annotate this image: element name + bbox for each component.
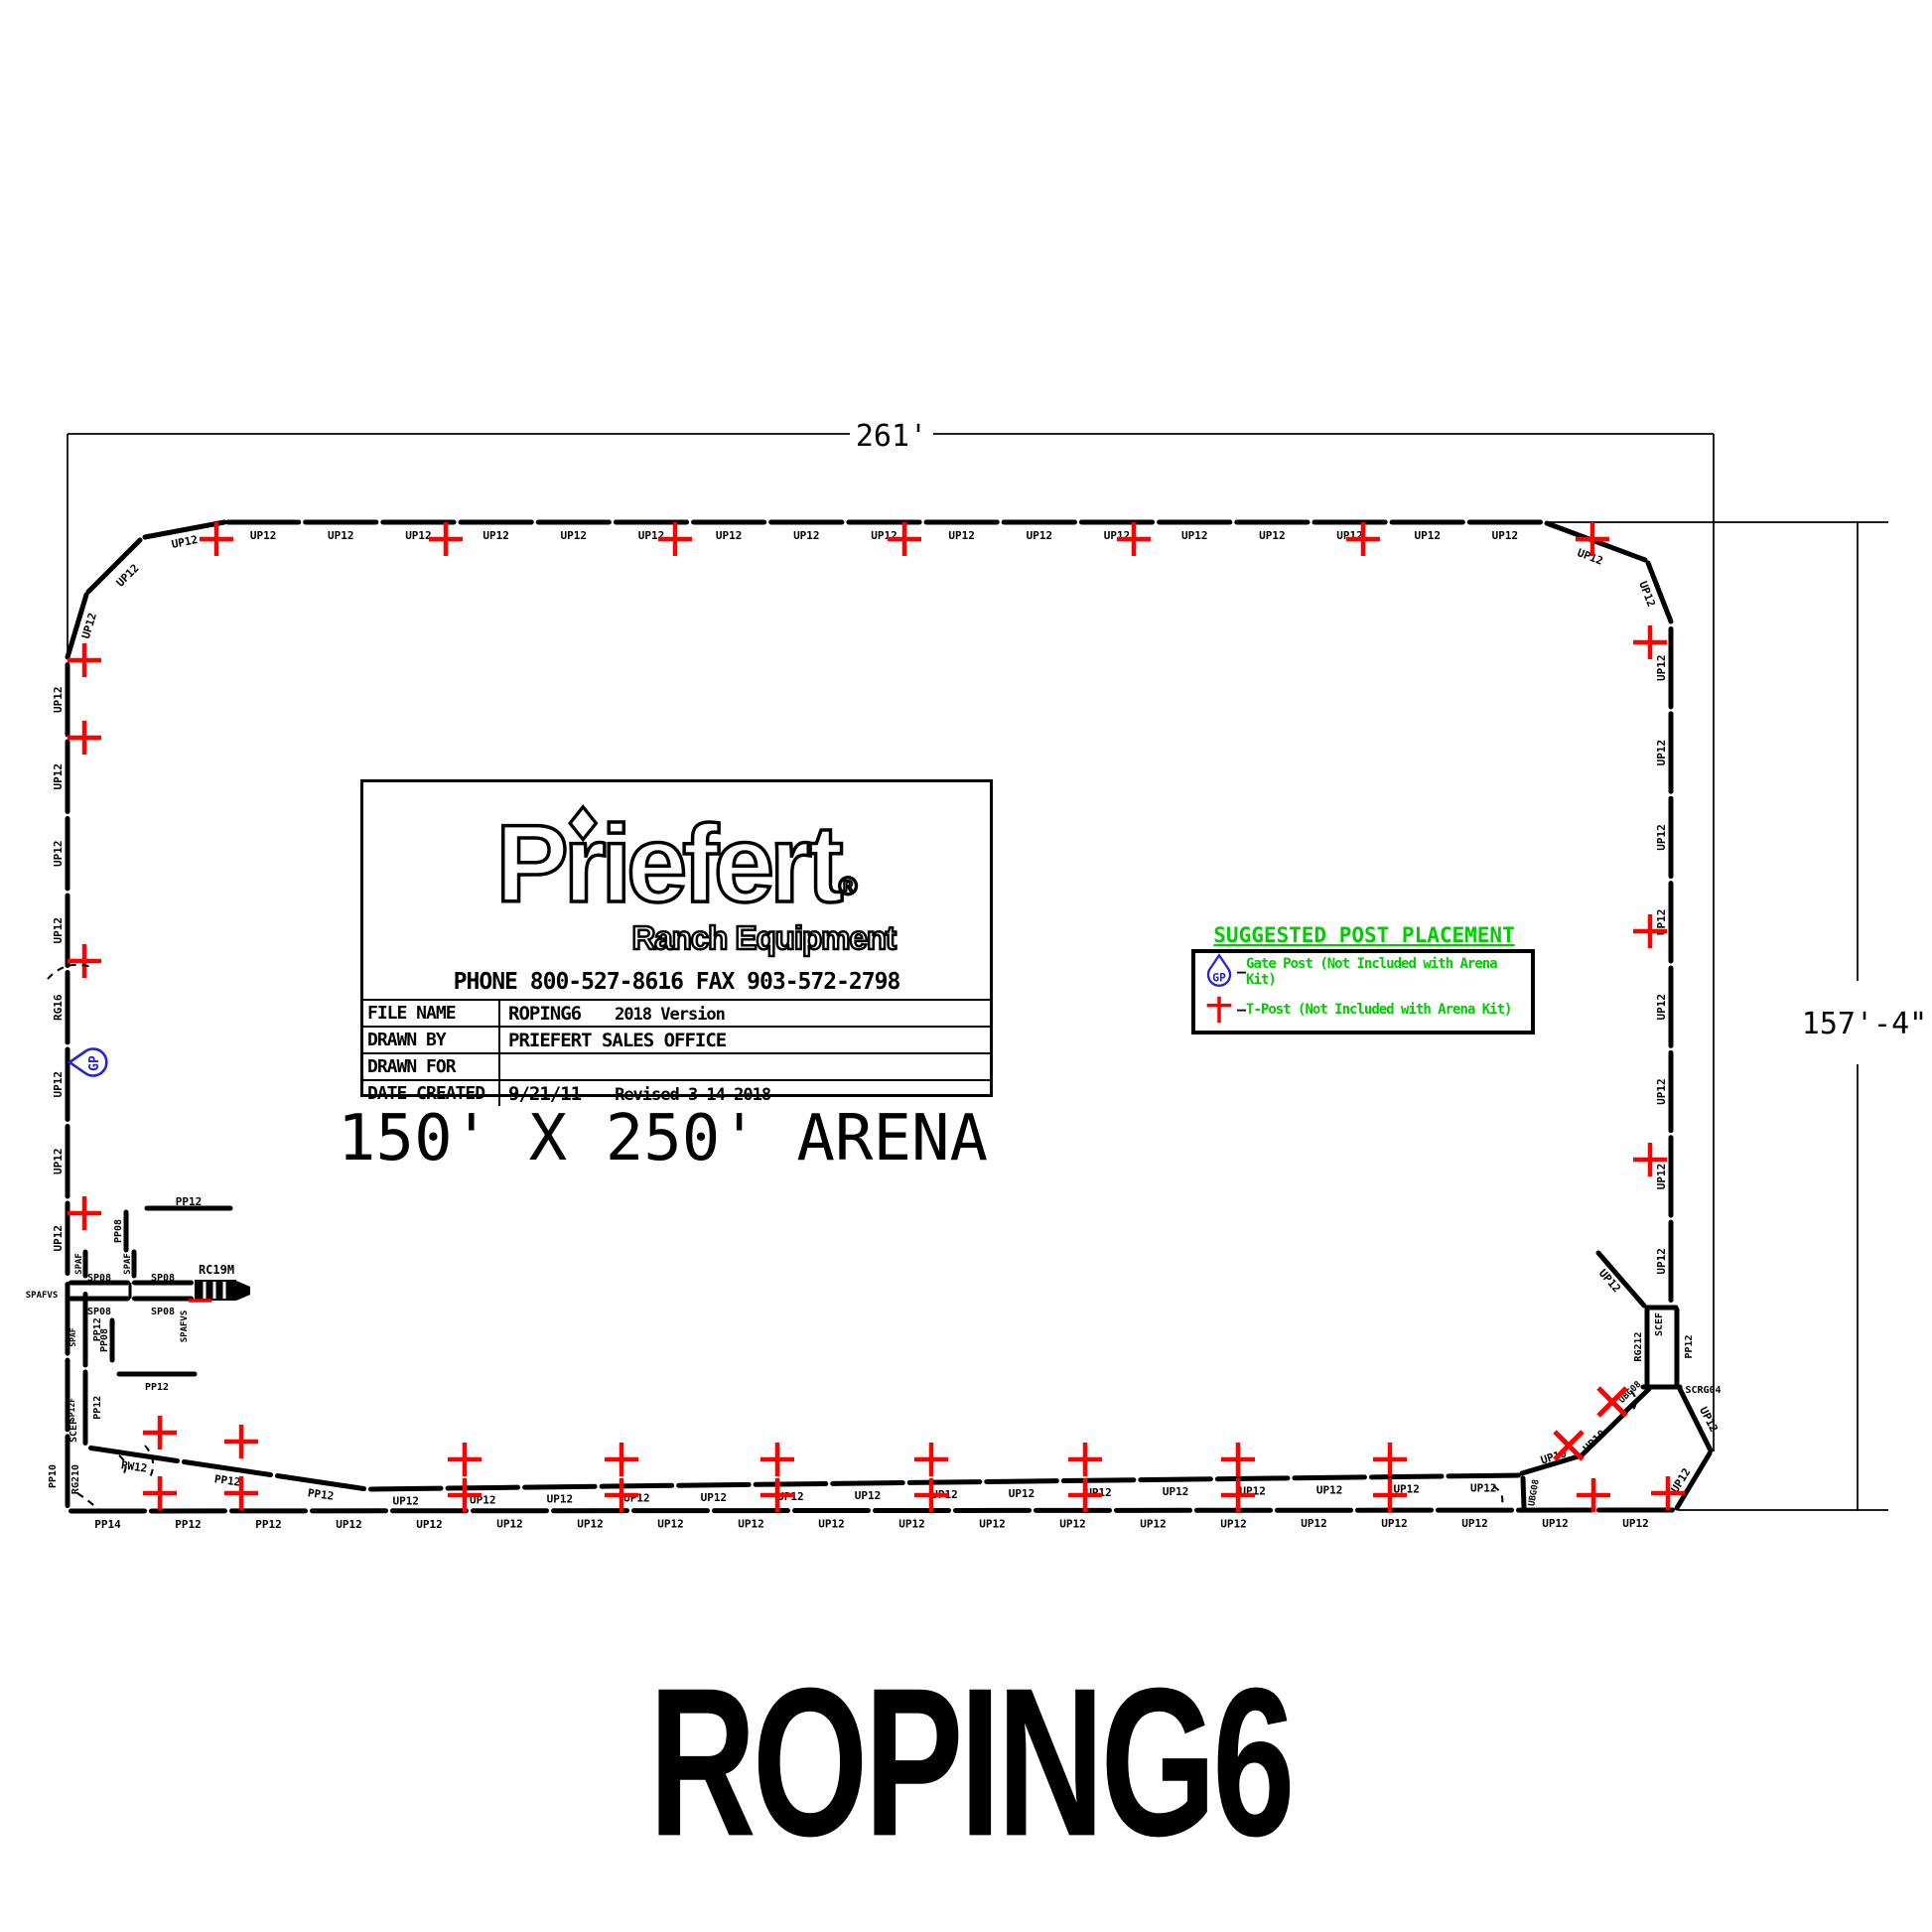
brand-subtitle: Ranch Equipment bbox=[631, 919, 896, 957]
panel-label-inner-left-fence: PP12 bbox=[92, 1396, 103, 1420]
panel-label-left-fence: UP12 bbox=[52, 1071, 65, 1098]
t-post-marker bbox=[1633, 625, 1667, 659]
panel-label-right-fence: UP12 bbox=[1655, 740, 1668, 766]
panel-label-chute-alley-top: SP08 bbox=[87, 1273, 111, 1284]
fence-panel-return-alley-diag bbox=[90, 1449, 177, 1461]
x-post-marker bbox=[1555, 1432, 1583, 1459]
panel-label-top-fence: UP12 bbox=[1414, 529, 1441, 542]
row-value: PRIEFERT SALES OFFICE bbox=[508, 1030, 726, 1051]
t-post-icon bbox=[1201, 993, 1237, 1027]
t-post-marker bbox=[760, 1443, 794, 1476]
panel-label-bottom-fence: UP12 bbox=[657, 1518, 684, 1531]
panel-label-top-fence: UP12 bbox=[1259, 529, 1286, 542]
dimension-right-label: 157'-4" bbox=[1802, 1007, 1927, 1041]
panel-label-return-alley: UP12 bbox=[1163, 1485, 1189, 1498]
equipment-label: SPAF bbox=[69, 1327, 77, 1346]
panel-label-right-fence: UP12 bbox=[1655, 824, 1668, 851]
equipment-label: SPAFVS bbox=[26, 1291, 59, 1301]
panel-label-top-fence: UP12 bbox=[793, 529, 820, 542]
panel-label-bottom-fence: UP12 bbox=[898, 1517, 925, 1530]
panel-label-right-fence: UP12 bbox=[1655, 1164, 1668, 1190]
row-value-2: 2018 Version bbox=[615, 1005, 725, 1025]
title-block: Priefert® ◆ Ranch Equipment PHONE 800-52… bbox=[360, 779, 993, 1097]
panel-label-strip-chute-gate: SCRG04 bbox=[1685, 1385, 1721, 1396]
fence-panel-return-alley bbox=[1063, 1480, 1134, 1481]
panel-label-bottom-fence: PP14 bbox=[94, 1518, 121, 1531]
panel-label-bottom-fence: UP12 bbox=[979, 1517, 1006, 1530]
panel-label-alley-end-gate: UBG08 bbox=[1527, 1478, 1542, 1506]
t-post-marker bbox=[448, 1478, 482, 1512]
panel-label-bottom-fence: UP12 bbox=[1542, 1517, 1569, 1530]
panel-label-bottom-fence: UP12 bbox=[1301, 1517, 1327, 1530]
fence-panel-return-alley bbox=[1295, 1477, 1365, 1478]
t-post-marker bbox=[1373, 1443, 1407, 1476]
panel-label-return-alley: UP12 bbox=[1009, 1487, 1035, 1500]
panel-label-top-fence: UP12 bbox=[716, 529, 743, 542]
panel-label-pen-top-rail: PP12 bbox=[176, 1195, 203, 1208]
panel-label-chute-alley-bottom: SP08 bbox=[87, 1307, 111, 1317]
arena-size-label: 150' X 250' ARENA bbox=[338, 1102, 1052, 1175]
phone-fax-line: PHONE 800-527-8616 FAX 903-572-2798 bbox=[363, 969, 990, 995]
t-post-marker bbox=[888, 522, 921, 556]
legend-dash: — bbox=[1237, 963, 1246, 981]
equipment-label: RC19M bbox=[199, 1263, 234, 1277]
row-label: DRAWN FOR bbox=[363, 1054, 500, 1079]
panel-label-return-alley-diag: PP12 bbox=[307, 1486, 335, 1503]
t-post-marker bbox=[1346, 522, 1380, 556]
t-post-marker bbox=[1221, 1443, 1255, 1476]
panel-label-tl-corner-1: UP12 bbox=[171, 533, 199, 551]
panel-label-top-fence: UP12 bbox=[561, 529, 588, 542]
t-post-marker bbox=[143, 1416, 177, 1449]
t-post-marker bbox=[68, 944, 101, 978]
panel-label-return-alley: UP12 bbox=[547, 1493, 574, 1506]
panel-label-bottom-fence: UP12 bbox=[336, 1518, 362, 1531]
gate-post-gp-label: GP bbox=[87, 1055, 102, 1071]
gate-swing-arc bbox=[77, 1493, 99, 1510]
panel-label-top-fence: UP12 bbox=[483, 529, 509, 542]
equipment-label: SPAFVS bbox=[180, 1311, 190, 1343]
fence-panel-return-alley-diag bbox=[184, 1462, 270, 1475]
t-post-marker bbox=[605, 1478, 638, 1512]
t-post-marker bbox=[1221, 1478, 1255, 1512]
panel-label-bottom-fence: PP12 bbox=[175, 1518, 202, 1531]
fence-panel-return-alley bbox=[756, 1483, 826, 1484]
panel-label-strip-chute-wing: UP12 bbox=[1596, 1267, 1623, 1296]
fence-panel-return-alley bbox=[1217, 1478, 1288, 1479]
panel-label-bottom-fence: UP12 bbox=[1220, 1517, 1247, 1530]
table-row: DRAWN FOR bbox=[363, 1052, 990, 1079]
panel-label-chute-frame-2: SPAF bbox=[123, 1253, 133, 1275]
panel-label-chute-alley-top: SP08 bbox=[151, 1273, 175, 1284]
legend-box: GP — Gate Post (Not Included with Arena … bbox=[1191, 949, 1535, 1035]
fence-panel-return-alley bbox=[679, 1484, 750, 1485]
row-label: FILE NAME bbox=[363, 1001, 500, 1026]
legend-item-label: T-Post (Not Included with Arena Kit) bbox=[1246, 1002, 1511, 1018]
panel-label-left-fence: UP12 bbox=[52, 763, 65, 790]
t-post-marker bbox=[1577, 1478, 1610, 1512]
panel-label-left-fence: UP12 bbox=[52, 687, 65, 714]
panel-label-top-fence: UP12 bbox=[1027, 529, 1053, 542]
fence-panel-return-alley bbox=[987, 1481, 1057, 1482]
diamond-icon: ◆ bbox=[570, 788, 597, 852]
panel-label-bottom-fence: UP12 bbox=[1461, 1517, 1488, 1530]
panel-label-top-fence: UP12 bbox=[1492, 529, 1519, 542]
t-post-marker bbox=[914, 1443, 948, 1476]
legend-item-label: Gate Post (Not Included with Arena Kit) bbox=[1246, 956, 1531, 988]
t-post-marker bbox=[224, 1425, 258, 1458]
panel-label-bottom-fence: PP12 bbox=[255, 1518, 282, 1531]
gate-post-icon: GP bbox=[1201, 952, 1237, 992]
table-row: DRAWN BY PRIEFERT SALES OFFICE bbox=[363, 1026, 990, 1052]
panel-label-bottom-fence: UP12 bbox=[1059, 1517, 1086, 1530]
panel-label-chute-alley-bottom: SP08 bbox=[151, 1307, 175, 1317]
row-value: ROPING6 bbox=[508, 1003, 581, 1025]
t-post-marker bbox=[68, 721, 101, 755]
legend-item-gate-post: GP — Gate Post (Not Included with Arena … bbox=[1195, 953, 1531, 991]
panel-label-strip-chute-left: RG212 bbox=[1633, 1331, 1644, 1361]
panel-label-bottom-fence: UP12 bbox=[738, 1518, 764, 1531]
equipment-label: RG210 bbox=[70, 1464, 81, 1494]
fence-panel-return-alley bbox=[448, 1487, 518, 1488]
sheet-title: ROPING6 bbox=[616, 1656, 1324, 1867]
panel-label-top-fence: UP12 bbox=[328, 529, 354, 542]
title-block-table: FILE NAME ROPING62018 Version DRAWN BY P… bbox=[363, 999, 990, 1106]
panel-label-top-fence: UP12 bbox=[1181, 529, 1208, 542]
panel-label-return-alley: UP12 bbox=[393, 1495, 420, 1508]
t-post-marker bbox=[68, 1196, 101, 1230]
panel-label-return-alley: UP12 bbox=[855, 1489, 882, 1502]
priefert-logo: Priefert® ◆ bbox=[363, 810, 990, 919]
fence-panel-return-alley bbox=[1141, 1479, 1211, 1480]
panel-label-pen-bottom-side: PP08 bbox=[99, 1328, 110, 1352]
brand-wordmark: Priefert bbox=[495, 803, 838, 925]
panel-label-return-alley-diag: PP12 bbox=[213, 1472, 241, 1489]
panel-label-pen-top-side: PP08 bbox=[113, 1219, 124, 1243]
fence-panel-return-alley bbox=[370, 1488, 441, 1489]
panel-label-top-fence: UP12 bbox=[948, 529, 975, 542]
panel-label-return-alley: UP12 bbox=[1470, 1481, 1497, 1494]
equipment-label: PP10 bbox=[48, 1464, 59, 1488]
panel-label-pen-bottom-rail: PP12 bbox=[145, 1382, 169, 1393]
dimension-top-label: 261' bbox=[856, 419, 927, 454]
panel-label-right-fence: UP12 bbox=[1655, 1248, 1668, 1275]
registered-mark: ® bbox=[839, 872, 858, 901]
panel-label-chute-frame-1: SPAF bbox=[74, 1253, 84, 1275]
row-label: DRAWN BY bbox=[363, 1028, 500, 1052]
equipment-label: SCEF bbox=[1654, 1312, 1665, 1336]
fence-panel-return-alley-diag bbox=[277, 1476, 363, 1489]
roping-chute-tip bbox=[236, 1281, 250, 1301]
panel-label-bottom-fence: UP12 bbox=[416, 1518, 443, 1531]
panel-label-return-alley: UP12 bbox=[701, 1491, 728, 1504]
fence-panel-return-alley bbox=[909, 1482, 980, 1483]
fence-panel-return-alley bbox=[602, 1485, 672, 1486]
panel-label-left-fence: RG16 bbox=[52, 994, 65, 1021]
panel-label-bottom-fence: UP12 bbox=[1381, 1517, 1408, 1530]
panel-label-bottom-fence: UP12 bbox=[1622, 1517, 1649, 1530]
t-post-marker bbox=[429, 522, 463, 556]
legend-title: SUGGESTED POST PLACEMENT bbox=[1191, 923, 1537, 947]
t-post-marker bbox=[1068, 1443, 1102, 1476]
t-post-marker bbox=[1068, 1478, 1102, 1512]
t-post-marker bbox=[448, 1443, 482, 1476]
t-post-marker bbox=[658, 522, 692, 556]
panel-label-bottom-fence: UP12 bbox=[1140, 1517, 1167, 1530]
t-post-marker bbox=[143, 1476, 177, 1510]
panel-label-top-fence: UP12 bbox=[250, 529, 277, 542]
panel-label-tl-corner-2: UP12 bbox=[114, 562, 142, 590]
panel-label-left-fence: UP12 bbox=[52, 917, 65, 944]
panel-label-strip-chute-right: PP12 bbox=[1684, 1334, 1695, 1358]
panel-label-tr-corner-1: UP12 bbox=[1576, 546, 1604, 568]
table-row: FILE NAME ROPING62018 Version bbox=[363, 999, 990, 1026]
panel-label-top-fence: UP12 bbox=[405, 529, 432, 542]
legend-dash: — bbox=[1237, 1001, 1246, 1019]
equipment-label: SP12F bbox=[68, 1398, 76, 1422]
t-post-marker bbox=[605, 1443, 638, 1476]
panel-label-return-alley: UP12 bbox=[1316, 1483, 1343, 1496]
svg-text:GP: GP bbox=[1212, 971, 1226, 985]
fence-panel-return-alley bbox=[525, 1486, 596, 1487]
panel-label-left-fence: UP12 bbox=[52, 841, 65, 868]
panel-label-left-fence: UP12 bbox=[52, 1149, 65, 1175]
fence-panel-return-alley bbox=[1449, 1475, 1519, 1476]
panel-label-right-fence: UP12 bbox=[1655, 994, 1668, 1021]
panel-label-left-fence: UP12 bbox=[52, 1225, 65, 1252]
t-post-marker bbox=[1117, 522, 1151, 556]
fence-panel-return-alley bbox=[833, 1483, 903, 1484]
fence-panel-return-alley bbox=[1371, 1476, 1442, 1477]
panel-label-bottom-fence: UP12 bbox=[577, 1518, 604, 1531]
panel-label-bottom-fence: UP12 bbox=[818, 1518, 845, 1531]
fence-panel-alley-end-gate bbox=[1523, 1478, 1524, 1507]
legend-item-t-post: — T-Post (Not Included with Arena Kit) bbox=[1195, 991, 1531, 1029]
drawing-sheet: 261'157'-4"UP12UP12UP12UP12UP12UP12UP12U… bbox=[0, 0, 1932, 1932]
panel-label-right-fence: UP12 bbox=[1655, 1078, 1668, 1105]
panel-label-bottom-fence: UP12 bbox=[496, 1518, 523, 1531]
panel-label-right-fence: UP12 bbox=[1655, 654, 1668, 681]
